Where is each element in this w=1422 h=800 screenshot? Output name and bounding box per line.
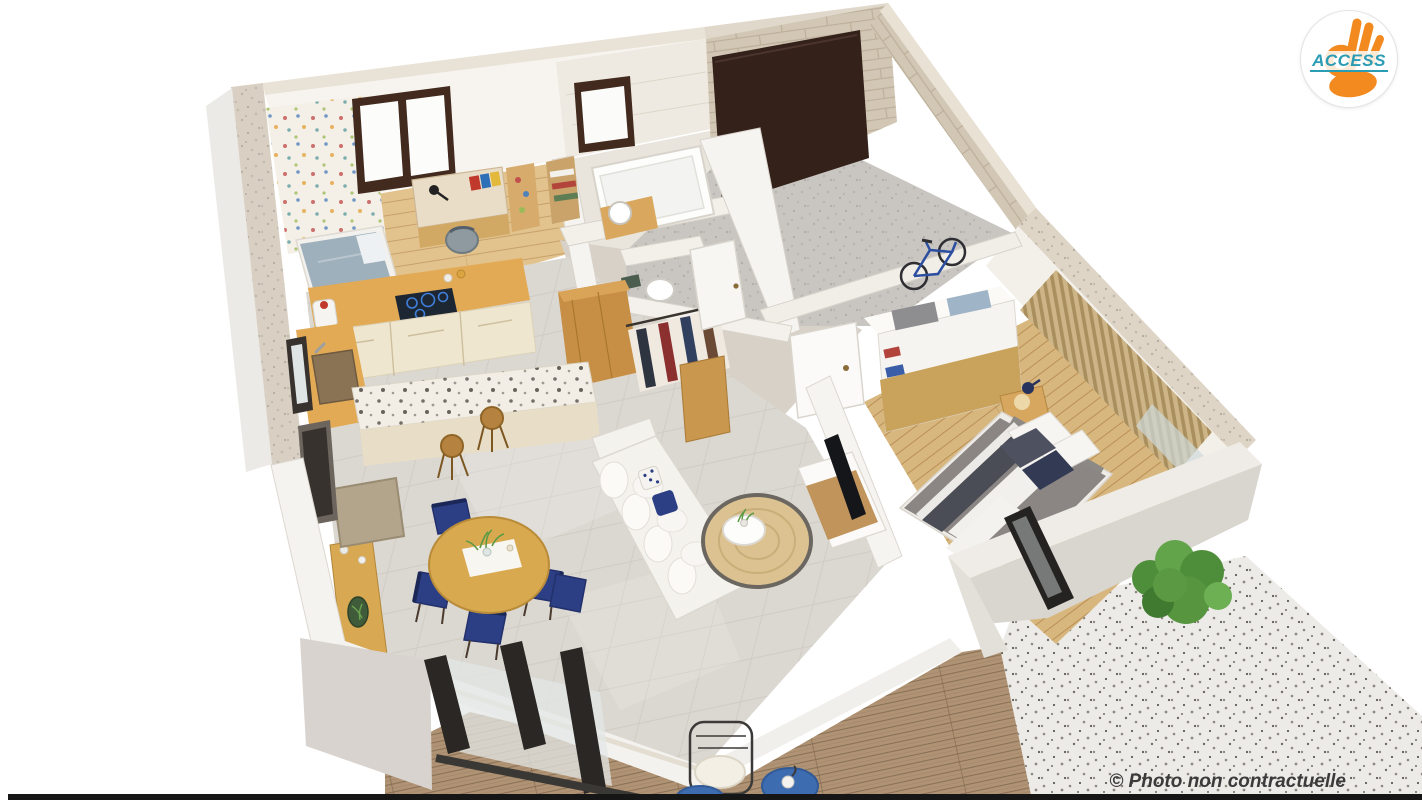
bathroom-window <box>574 76 635 153</box>
sw-exterior-face <box>300 638 432 790</box>
doormat <box>333 478 404 547</box>
kitchen-sink <box>312 350 360 404</box>
door-handle <box>843 365 849 371</box>
vessel-basin <box>609 202 631 224</box>
desk-chair <box>446 227 478 253</box>
floorplan-screenshot: ACCESS © Photo non contractuelle <box>0 0 1422 800</box>
closet-wood-door <box>680 356 730 442</box>
dining-table <box>429 517 549 613</box>
toilet <box>646 279 674 301</box>
dining-chair-5 <box>550 574 586 612</box>
photo-disclaimer-watermark: © Photo non contractuelle <box>1109 771 1346 793</box>
floorplan-render <box>0 0 1422 800</box>
logo-wordmark: ACCESS <box>1301 51 1397 71</box>
access-logo: ACCESS <box>1301 11 1397 107</box>
towel-ladder <box>546 156 580 224</box>
image-bottom-border <box>8 794 1422 800</box>
book-shelf <box>506 163 540 232</box>
